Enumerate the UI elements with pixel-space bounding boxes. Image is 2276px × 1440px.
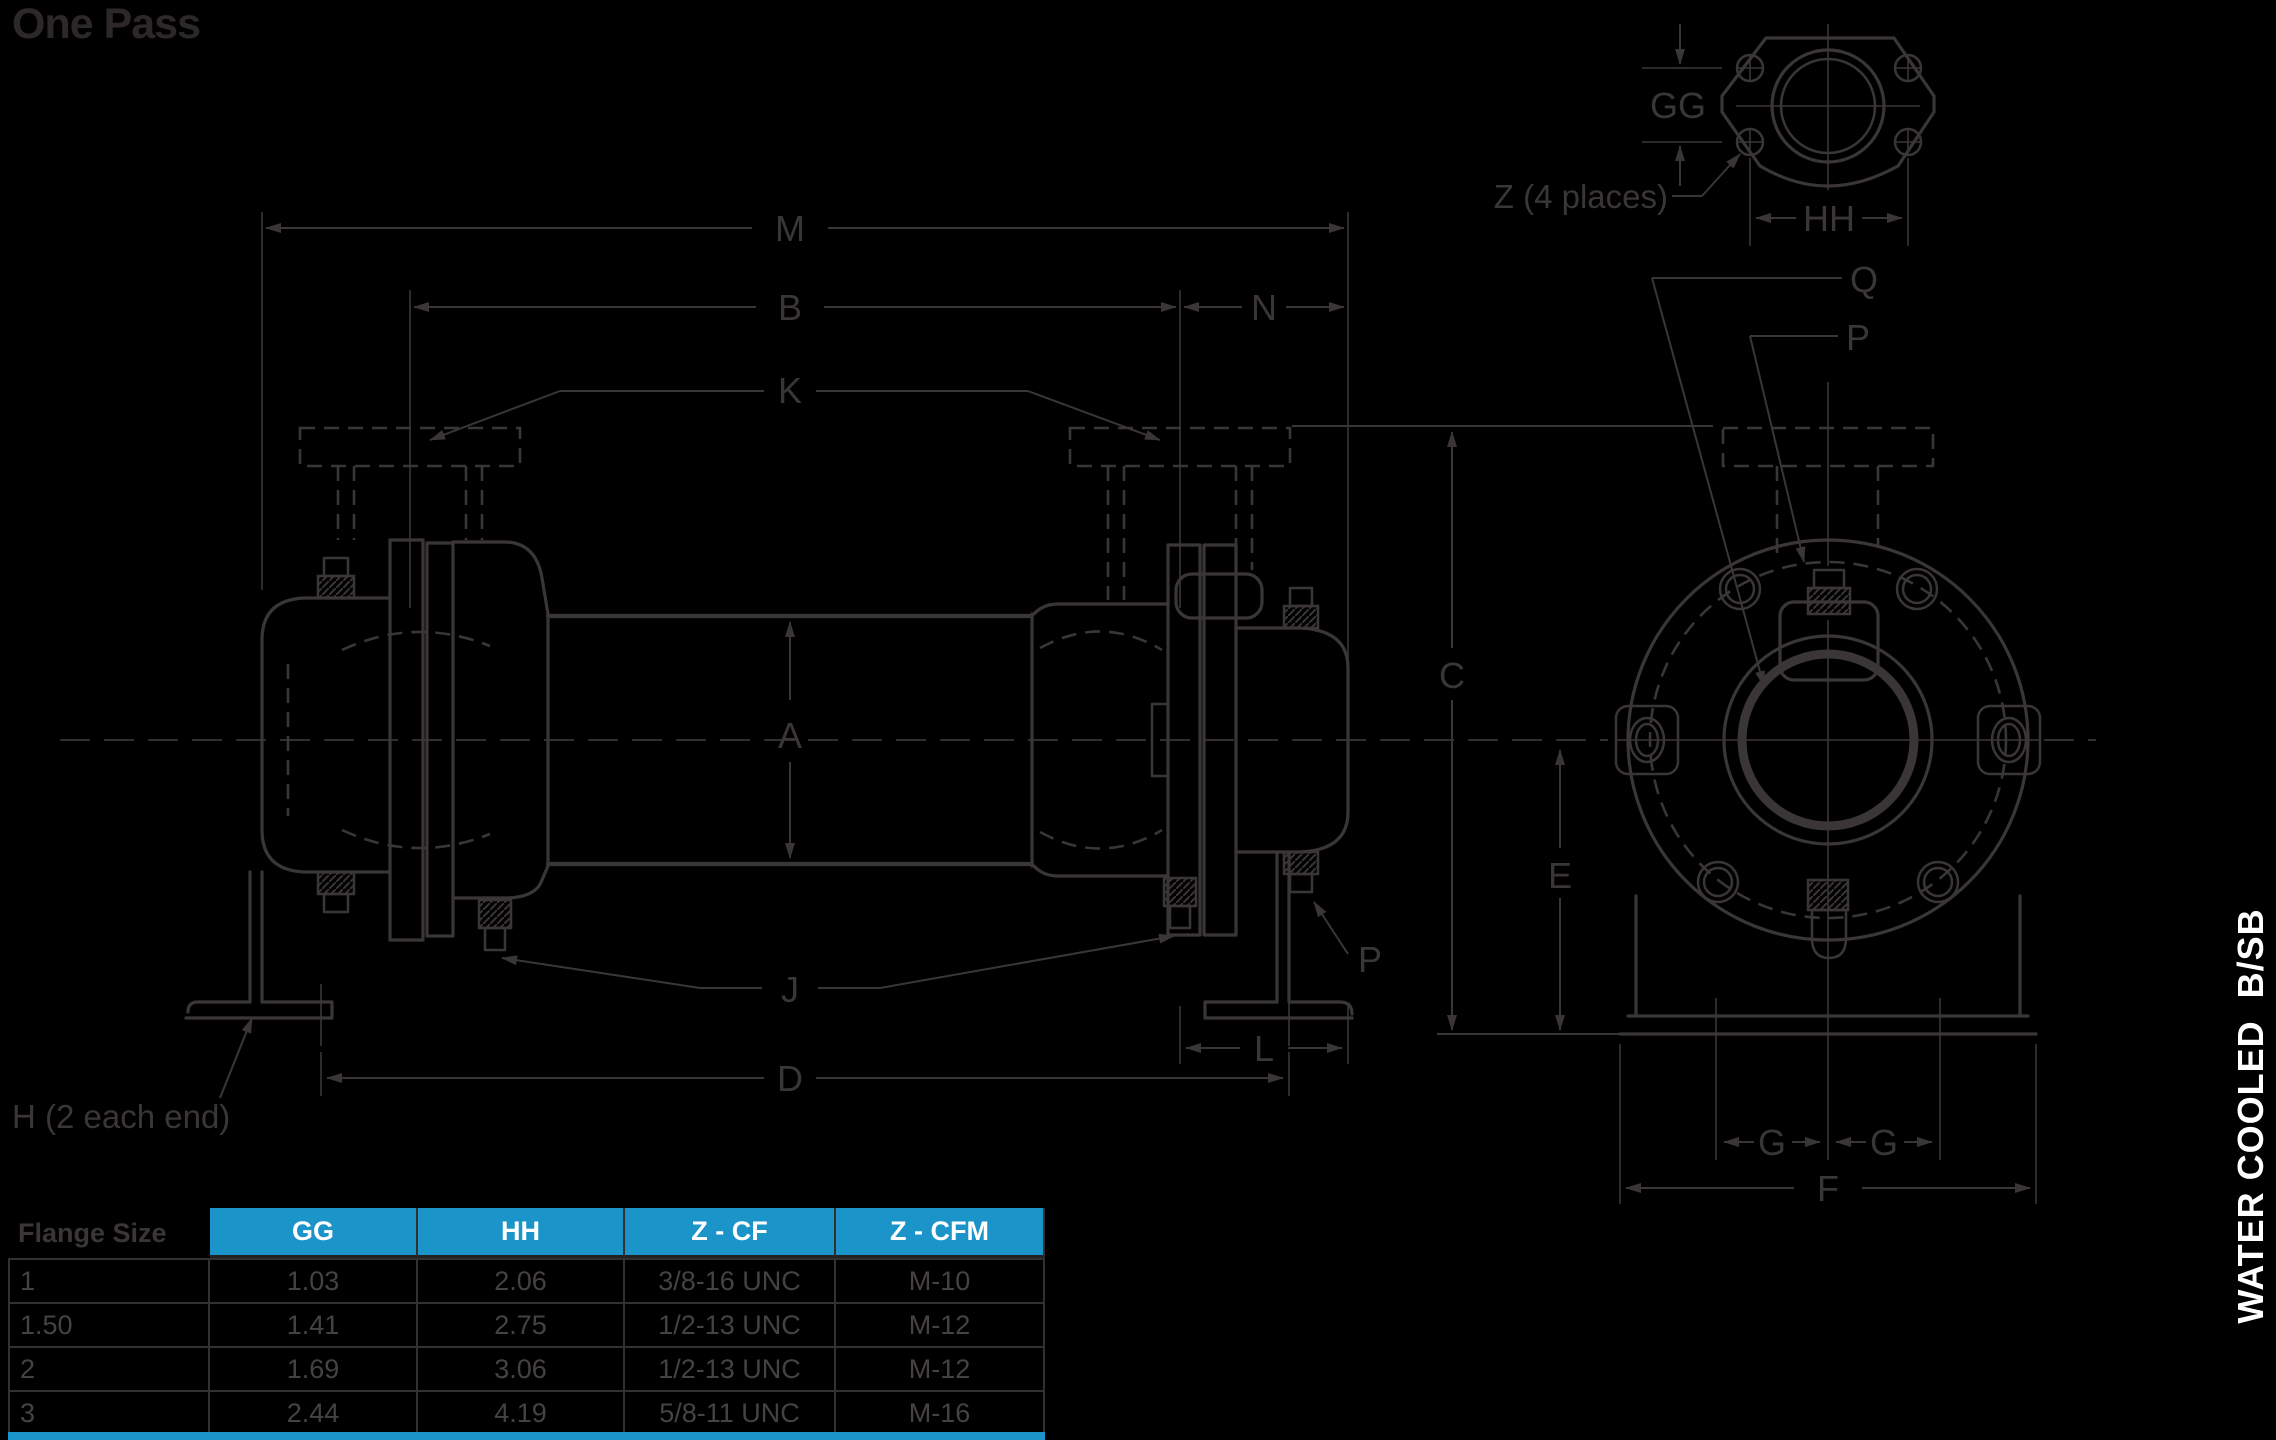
table-cell: 1.50 [8, 1302, 210, 1346]
dim-label-d: D [777, 1058, 803, 1099]
table-cell: 1.41 [210, 1302, 418, 1346]
dim-label-q: Q [1850, 259, 1878, 300]
side-view [186, 290, 1352, 1046]
dim-label-e: E [1548, 855, 1572, 896]
dim-label-z-note: Z (4 places) [1494, 178, 1668, 215]
end-view-dimensions: C E Q P G G F [1437, 259, 2036, 1209]
table-header-z-cf: Z - CF [625, 1208, 836, 1258]
table-cell: 3/8-16 UNC [625, 1258, 836, 1302]
right-foot [1205, 852, 1352, 1046]
dim-label-gg: GG [1650, 85, 1706, 126]
table-cell: M-12 [836, 1346, 1045, 1390]
dim-label-p-end: P [1846, 317, 1870, 358]
table-cell: 2 [8, 1346, 210, 1390]
dim-label-g-left: G [1758, 1122, 1786, 1163]
dim-label-m: M [775, 208, 805, 249]
side-view-dimensions: M B N K A J P H (2 each end) D [12, 208, 1382, 1135]
dim-label-f: F [1817, 1168, 1839, 1209]
left-drain-plug [479, 900, 511, 928]
table-header-flange-size: Flange Size [8, 1208, 210, 1258]
table-header-gg: GG [210, 1208, 418, 1258]
dim-label-h-note: H (2 each end) [12, 1098, 230, 1135]
flange-table: Flange Size GG HH Z - CF Z - CFM 1 1.03 … [8, 1208, 1045, 1434]
table-header-z-cfm: Z - CFM [836, 1208, 1045, 1258]
left-cap-bottom-plug [318, 872, 354, 894]
table-cell: 5/8-11 UNC [625, 1390, 836, 1434]
flange-detail: GG Z (4 places) HH [1494, 24, 1934, 246]
series-side-label: WATER COOLED B/SB [2230, 890, 2274, 1342]
table-cell: 1.03 [210, 1258, 418, 1302]
left-foot [186, 872, 332, 1046]
end-view [1292, 382, 2040, 1160]
dim-label-b: B [778, 287, 802, 328]
table-cell: 2.75 [418, 1302, 625, 1346]
table-cell: M-16 [836, 1390, 1045, 1434]
table-cell: 2.44 [210, 1390, 418, 1434]
dim-label-g-right: G [1870, 1122, 1898, 1163]
table-cell: 3 [8, 1390, 210, 1434]
vent-plug-thread [1808, 588, 1850, 614]
right-cap-top-plug [1284, 606, 1318, 628]
right-drain-plug [1164, 878, 1196, 906]
table-cell: 4.19 [418, 1390, 625, 1434]
dim-label-p-side: P [1358, 939, 1382, 980]
table-cell: 3.06 [418, 1346, 625, 1390]
table-header-hh: HH [418, 1208, 625, 1258]
left-cap-top-plug [318, 576, 354, 598]
table-cell: 1.69 [210, 1346, 418, 1390]
vent-plug-cap [1814, 570, 1844, 588]
dim-label-n: N [1251, 287, 1277, 328]
table-cell: 2.06 [418, 1258, 625, 1302]
end-drain-thread [1808, 880, 1848, 910]
next-table-header-strip [8, 1432, 1045, 1440]
dim-label-c: C [1439, 655, 1465, 696]
table-cell: 1 [8, 1258, 210, 1302]
right-port-boss [1176, 574, 1262, 618]
dim-label-l: L [1254, 1028, 1274, 1069]
left-bonnet [453, 542, 548, 614]
table-cell: M-10 [836, 1258, 1045, 1302]
table-cell: 1/2-13 UNC [625, 1346, 836, 1390]
table-cell: M-12 [836, 1302, 1045, 1346]
dim-label-j: J [781, 969, 799, 1010]
dim-label-k: K [778, 370, 802, 411]
dim-label-hh: HH [1803, 198, 1855, 239]
right-bonnet [1032, 604, 1168, 616]
dim-label-a: A [778, 715, 802, 756]
flange-bolt-holes [1737, 55, 1921, 155]
table-cell: 1/2-13 UNC [625, 1302, 836, 1346]
